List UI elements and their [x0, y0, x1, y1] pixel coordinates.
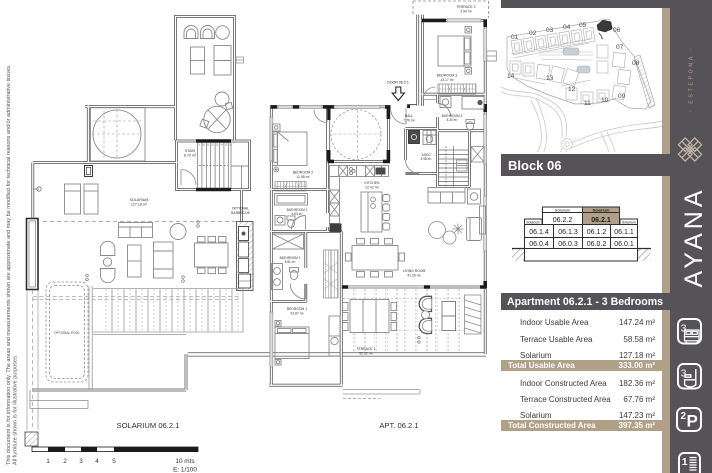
svg-text:4: 4 — [95, 458, 99, 465]
svg-text:08: 08 — [632, 60, 640, 67]
svg-text:09: 09 — [618, 93, 626, 100]
svg-text:127.18 m²: 127.18 m² — [131, 203, 148, 207]
svg-text:10: 10 — [601, 97, 609, 104]
svg-text:41.26 m²: 41.26 m² — [407, 274, 421, 278]
svg-text:SOLARIUM: SOLARIUM — [130, 198, 149, 202]
svg-text:15: 15 — [225, 145, 228, 147]
svg-text:23.87 m²: 23.87 m² — [290, 312, 304, 316]
svg-text:13.17 m²: 13.17 m² — [440, 78, 454, 82]
svg-text:06.1.2: 06.1.2 — [587, 229, 607, 236]
svg-text:BARBECUE: BARBECUE — [231, 211, 250, 215]
svg-text:05: 05 — [579, 22, 587, 29]
svg-text:1: 1 — [46, 458, 50, 465]
svg-text:P: P — [687, 412, 698, 431]
svg-text:3.94 m²: 3.94 m² — [460, 10, 472, 14]
svg-text:HALL: HALL — [405, 114, 414, 118]
svg-text:DOOR 06.2.1: DOOR 06.2.1 — [387, 81, 409, 85]
svg-text:2: 2 — [63, 458, 67, 465]
svg-text:06: 06 — [613, 27, 621, 34]
svg-text:16: 16 — [229, 145, 232, 147]
svg-text:KITCHEN: KITCHEN — [365, 181, 380, 185]
svg-text:7.76 m²: 7.76 m² — [403, 119, 415, 123]
svg-text:OPTIONAL: OPTIONAL — [232, 207, 249, 211]
svg-text:9: 9 — [198, 145, 200, 147]
svg-text:TERRACE 1: TERRACE 1 — [356, 347, 375, 351]
svg-text:TERRACE 2: TERRACE 2 — [456, 5, 475, 9]
svg-text:13: 13 — [546, 75, 554, 82]
svg-text:1: 1 — [682, 456, 688, 468]
svg-text:06.1.4: 06.1.4 — [529, 229, 549, 236]
svg-text:14: 14 — [220, 145, 223, 147]
svg-text:STAIR: STAIR — [185, 149, 196, 153]
svg-text:3: 3 — [79, 458, 83, 465]
svg-text:11: 11 — [207, 145, 210, 147]
svg-text:06.0.4: 06.0.4 — [529, 241, 549, 248]
svg-text:10 mts: 10 mts — [175, 458, 194, 465]
svg-text:4.30 m²: 4.30 m² — [447, 118, 458, 122]
svg-text:E: 1/100: E: 1/100 — [173, 467, 197, 473]
svg-text:4.98 m²: 4.98 m² — [421, 157, 432, 161]
svg-text:07: 07 — [616, 44, 624, 51]
svg-text:06.1.3: 06.1.3 — [558, 229, 578, 236]
svg-text:10: 10 — [202, 145, 205, 147]
svg-text:01: 01 — [511, 34, 519, 41]
svg-text:OPTIONAL POOL: OPTIONAL POOL — [54, 331, 80, 335]
svg-text:12.02 m²: 12.02 m² — [365, 186, 379, 190]
svg-text:11: 11 — [584, 100, 591, 107]
svg-text:06.2.1: 06.2.1 — [591, 217, 611, 224]
svg-text:14: 14 — [507, 73, 515, 80]
svg-text:06.0.2: 06.0.2 — [587, 241, 607, 248]
svg-text:Solarium: Solarium — [526, 221, 540, 225]
svg-text:12: 12 — [211, 145, 214, 147]
svg-text:BEDROOM 2: BEDROOM 2 — [293, 171, 313, 175]
svg-text:LIVING ROOM: LIVING ROOM — [403, 269, 426, 273]
svg-text:5: 5 — [112, 458, 116, 465]
svg-text:06.0.3: 06.0.3 — [558, 241, 578, 248]
svg-text:12: 12 — [568, 86, 576, 93]
svg-text:All furniture shown is for ill: All furniture shown is for illustrative … — [13, 354, 19, 465]
svg-text:AYANA: AYANA — [680, 186, 708, 287]
svg-text:Solarium: Solarium — [555, 207, 571, 212]
svg-text:SOLARIUM 06.2.1: SOLARIUM 06.2.1 — [117, 421, 180, 430]
svg-text:03: 03 — [546, 27, 554, 34]
svg-text:11.98 m²: 11.98 m² — [296, 175, 310, 179]
svg-text:06.2.2: 06.2.2 — [553, 217, 573, 224]
svg-text:Solarium: Solarium — [592, 207, 610, 212]
svg-text:06.1.1: 06.1.1 — [614, 229, 634, 236]
svg-text:· ESTEPONA ·: · ESTEPONA · — [689, 46, 695, 113]
svg-text:5.81 m²: 5.81 m² — [285, 260, 296, 264]
svg-text:BEDROOM 3: BEDROOM 3 — [437, 74, 457, 78]
svg-text:04: 04 — [563, 24, 571, 31]
svg-text:4.63 m²: 4.63 m² — [292, 212, 303, 216]
svg-text:BEDROOM 1: BEDROOM 1 — [287, 307, 307, 311]
svg-text:Solarium: Solarium — [622, 221, 636, 225]
svg-text:13: 13 — [216, 145, 219, 147]
svg-text:06.0.1: 06.0.1 — [614, 241, 634, 248]
svg-text:02: 02 — [529, 30, 537, 37]
svg-text:APT. 06.2.1: APT. 06.2.1 — [379, 421, 418, 430]
svg-text:52.52 m²: 52.52 m² — [359, 352, 373, 356]
svg-text:8.70 m²: 8.70 m² — [184, 154, 197, 158]
svg-text:This document is for informati: This document is for information only. T… — [6, 64, 12, 465]
